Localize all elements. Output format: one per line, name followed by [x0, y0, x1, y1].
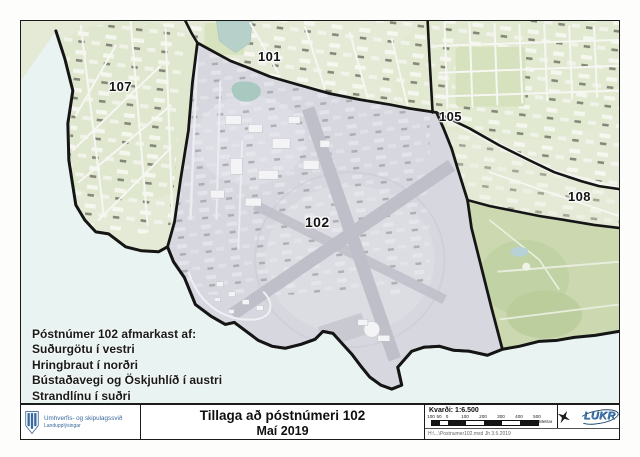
scale-tick: 300 [497, 414, 505, 419]
map-date: Maí 2019 [141, 424, 424, 438]
scale-bar-segment [440, 421, 448, 426]
pond [510, 247, 528, 257]
agency-box: Umhverfis- og skipulagssvið Landupplýsin… [20, 404, 141, 440]
boundary-description: Póstnúmer 102 afmarkast af: Suðurgötu í … [32, 327, 222, 404]
agency-shield-icon [25, 411, 39, 434]
scale-tick: 400 [515, 414, 523, 419]
scale-tick: 500 [533, 414, 541, 419]
scale-bar-segment [466, 421, 484, 426]
scale-bar-segment [448, 421, 466, 426]
scale-bar-segment [520, 421, 538, 426]
lukr-logo: LUKR [578, 408, 619, 425]
lukr-logo-text: LUKR [584, 410, 616, 422]
north-arrow-icon [555, 407, 574, 426]
file-path-credits: H:\...\Postnumer102.mxd Jh 3.5.2019 [425, 428, 619, 439]
scale-bar-segment [502, 421, 520, 426]
note-line: Suðurgötu í vestri [32, 342, 222, 357]
note-line: Strandlínu í suðri [32, 389, 222, 404]
region-label-105: 105 [439, 109, 462, 124]
scale-box: Kvarði: 1:6.500 100 50 0 100 200 300 400… [424, 404, 620, 440]
scale-tick: 0 [446, 414, 449, 419]
scale-bar [431, 420, 539, 427]
agency-department: Landupplýsingar [44, 423, 122, 429]
scale-bar-segment [432, 421, 440, 426]
region-label-107: 107 [109, 79, 132, 94]
note-line: Póstnúmer 102 afmarkast af: [32, 327, 222, 342]
scale-unit: Metrar [539, 419, 552, 424]
region-label-102: 102 [305, 214, 330, 230]
note-line: Bústaðavegi og Öskjuhlíð í austri [32, 373, 222, 388]
scale-tick: 100 [461, 414, 469, 419]
scale-tick: 100 [427, 414, 435, 419]
scale-bar-segment [484, 421, 502, 426]
scale-tick: 50 [436, 414, 441, 419]
scale-bar-area: Kvarði: 1:6.500 100 50 0 100 200 300 400… [425, 405, 558, 428]
region-label-108: 108 [568, 189, 591, 204]
map-frame: 107 101 105 102 108 Póstnúmer 102 afmark… [20, 20, 620, 404]
park [456, 47, 526, 107]
title-box: Tillaga að póstnúmeri 102 Maí 2019 [140, 404, 425, 440]
map-title: Tillaga að póstnúmeri 102 [141, 408, 424, 424]
region-label-101: 101 [258, 49, 281, 64]
agency-name: Umhverfis- og skipulagssvið [44, 415, 122, 423]
logo-area: LUKR [557, 405, 619, 428]
note-line: Hringbraut í norðri [32, 358, 222, 373]
scale-tick: 200 [479, 414, 487, 419]
scanned-map-page: { "map": { "region_labels": { "r101": "1… [0, 0, 640, 457]
